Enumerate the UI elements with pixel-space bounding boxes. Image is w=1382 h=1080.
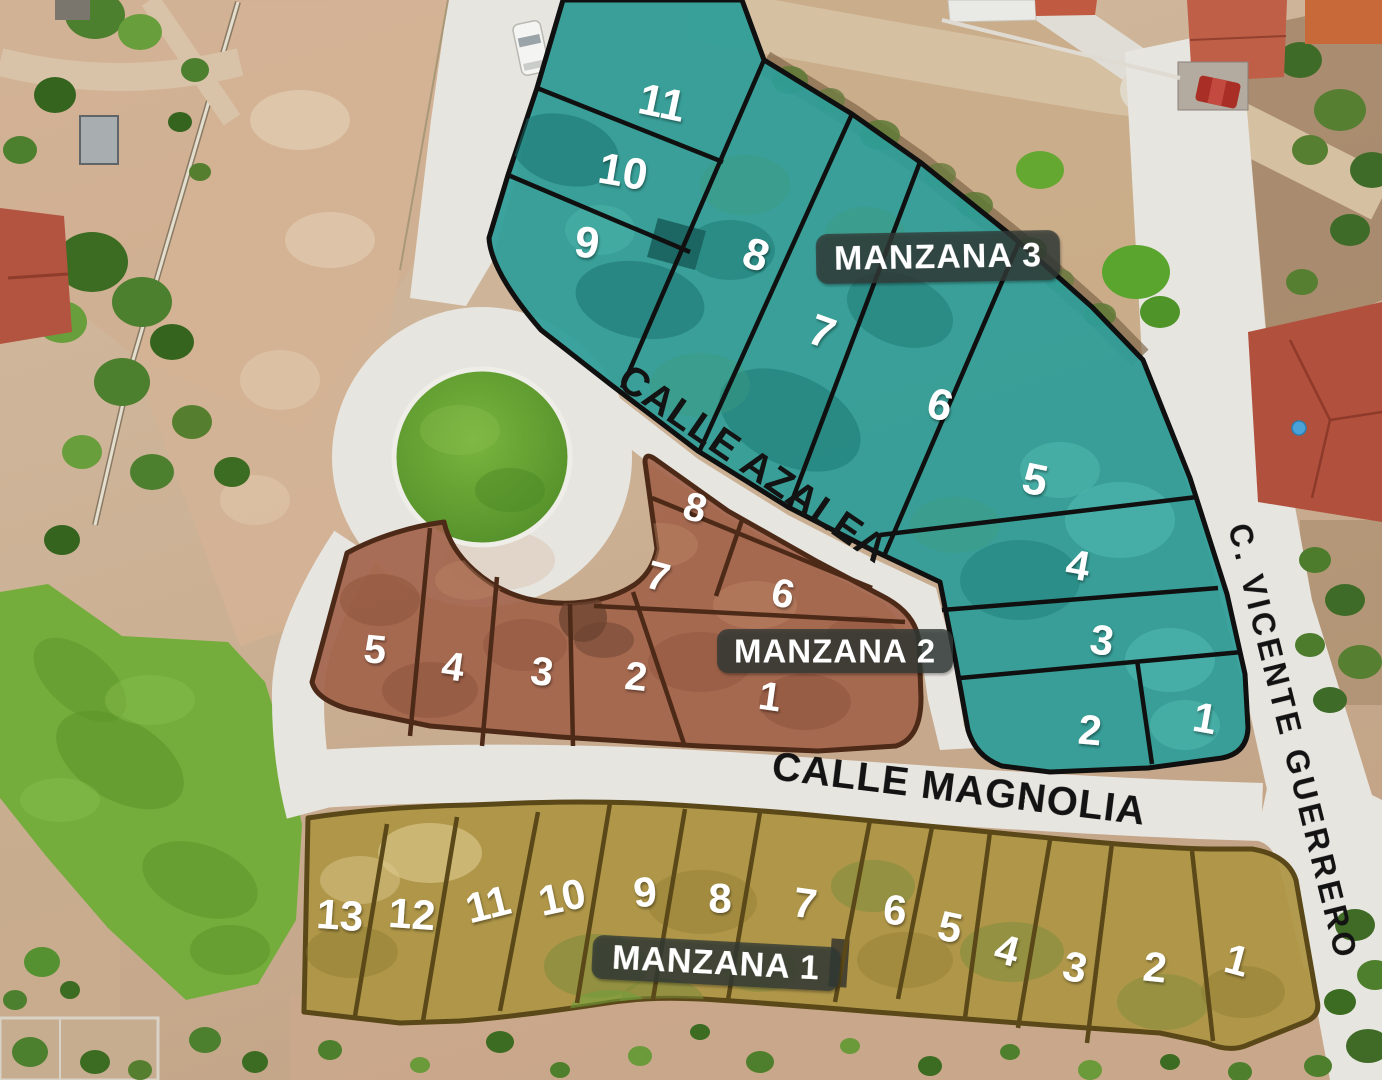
lot-number-m1-12: 12: [387, 889, 437, 939]
manzana-2-label: MANZANA 2: [717, 629, 953, 673]
manzana-3-label-text: MANZANA 3: [834, 236, 1043, 278]
lot-number-m3-2: 2: [1076, 706, 1103, 755]
lot-number-m1-6: 6: [881, 886, 908, 935]
lot-number-m1-10: 10: [534, 869, 589, 925]
house-roof-white: [948, 0, 1036, 22]
lot-number-m3-10: 10: [595, 144, 652, 201]
pool: [1292, 421, 1306, 435]
lot-number-m3-11: 11: [634, 74, 690, 132]
lot-number-m1-8: 8: [708, 875, 731, 922]
lot-map-svg: 11 10 9 8 7 6 5 4 3 2 1 8 7 6 5 4 3 2 1 …: [0, 0, 1382, 1080]
lot-number-m2-5: 5: [362, 627, 389, 673]
lot-number-m1-2: 2: [1141, 942, 1169, 991]
roundabout-grass-circle: [394, 369, 570, 545]
lot-number-m1-13: 13: [315, 890, 365, 940]
house-roof-orange: [1305, 0, 1382, 44]
manzana-3-label: MANZANA 3: [816, 230, 1061, 284]
house-roof-red-small: [1035, 0, 1097, 16]
aerial-lot-map: 11 10 9 8 7 6 5 4 3 2 1 8 7 6 5 4 3 2 1 …: [0, 0, 1382, 1080]
water-tank-structure: [80, 116, 118, 164]
lot-number-m1-9: 9: [632, 868, 659, 917]
manzana-2-label-text: MANZANA 2: [734, 633, 936, 670]
lot-number-m2-2: 2: [623, 654, 650, 700]
